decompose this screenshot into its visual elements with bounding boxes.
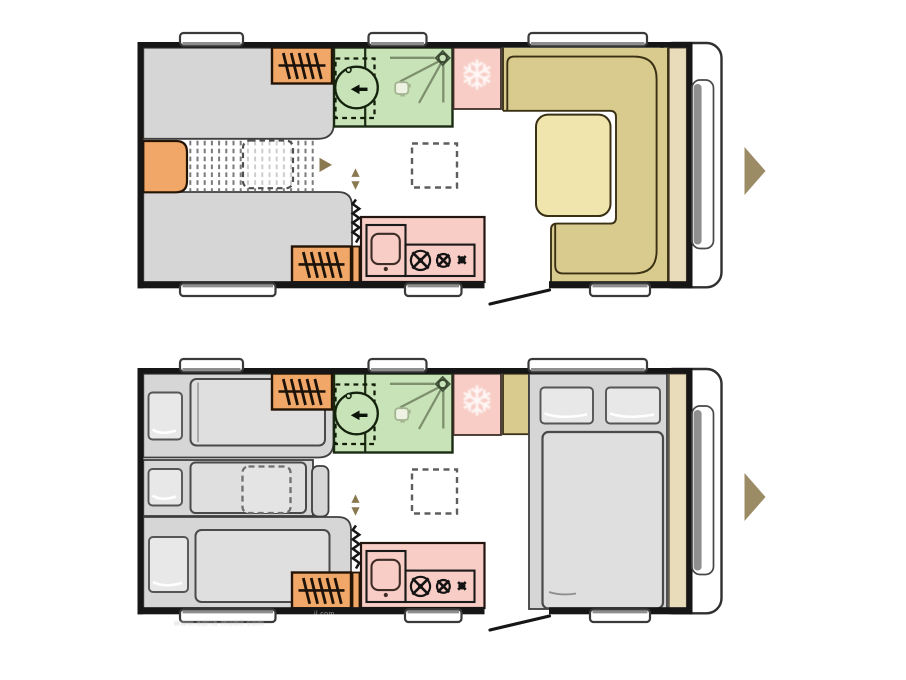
svg-text:www.adria-mobil.com: www.adria-mobil.com xyxy=(173,618,264,628)
svg-text:il.com: il.com xyxy=(314,611,335,618)
